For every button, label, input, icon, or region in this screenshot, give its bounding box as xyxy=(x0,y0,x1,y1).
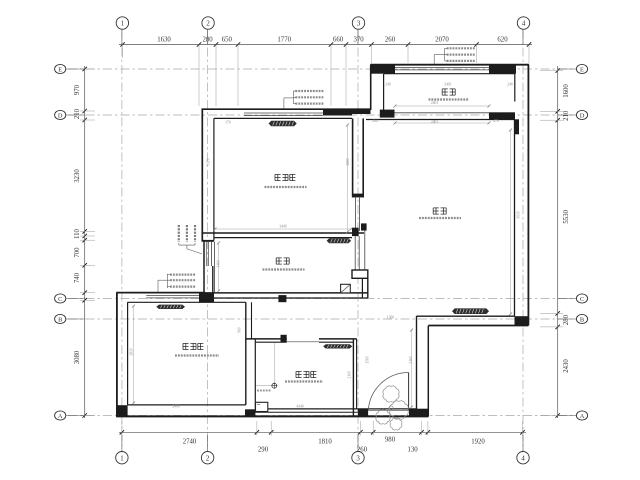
svg-text:476: 476 xyxy=(493,119,499,123)
svg-text:3170: 3170 xyxy=(207,158,211,165)
svg-text:1: 1 xyxy=(121,20,125,28)
svg-text:1920: 1920 xyxy=(471,439,485,446)
svg-text:260: 260 xyxy=(385,37,396,44)
svg-text:650: 650 xyxy=(222,37,233,44)
svg-text:3440: 3440 xyxy=(279,225,286,229)
svg-text:2160: 2160 xyxy=(409,356,413,363)
svg-text:4930: 4930 xyxy=(517,211,521,218)
svg-text:210: 210 xyxy=(74,108,81,119)
svg-text:970: 970 xyxy=(74,84,81,95)
svg-text:1810: 1810 xyxy=(318,439,332,446)
svg-text:210: 210 xyxy=(563,110,570,121)
svg-text:960: 960 xyxy=(238,327,242,333)
svg-text:D: D xyxy=(580,112,585,119)
svg-text:2740: 2740 xyxy=(183,439,197,446)
svg-text:2401: 2401 xyxy=(444,83,451,87)
svg-text:1: 1 xyxy=(120,454,124,462)
svg-text:170: 170 xyxy=(225,121,231,125)
svg-text:2: 2 xyxy=(206,20,210,28)
svg-text:110: 110 xyxy=(74,228,81,239)
svg-text:2880: 2880 xyxy=(346,158,350,165)
svg-text:2070: 2070 xyxy=(435,37,449,44)
svg-text:280: 280 xyxy=(563,314,570,325)
svg-text:D: D xyxy=(58,112,63,119)
svg-text:A: A xyxy=(580,413,585,420)
svg-text:2: 2 xyxy=(206,454,210,462)
svg-text:1360: 1360 xyxy=(387,316,394,320)
svg-text:2430: 2430 xyxy=(563,359,570,373)
svg-text:370: 370 xyxy=(353,37,364,44)
svg-text:4: 4 xyxy=(521,454,525,462)
svg-text:3: 3 xyxy=(357,20,361,28)
svg-text:C: C xyxy=(58,296,62,303)
svg-text:620: 620 xyxy=(497,37,508,44)
svg-text:1630: 1630 xyxy=(157,37,171,44)
svg-text:A: A xyxy=(58,413,63,420)
svg-text:1560: 1560 xyxy=(366,356,370,363)
svg-text:E: E xyxy=(580,66,584,73)
svg-text:2830: 2830 xyxy=(130,348,134,355)
svg-text:980: 980 xyxy=(385,437,396,444)
svg-text:B: B xyxy=(58,316,62,323)
svg-text:3080: 3080 xyxy=(74,350,81,364)
svg-text:740: 740 xyxy=(74,272,81,283)
svg-text:C: C xyxy=(580,296,584,303)
svg-text:2480: 2480 xyxy=(172,405,179,409)
svg-text:130: 130 xyxy=(407,447,418,454)
svg-text:4340: 4340 xyxy=(296,405,303,409)
svg-text:E: E xyxy=(58,66,62,73)
svg-text:264: 264 xyxy=(372,119,378,123)
svg-text:5530: 5530 xyxy=(563,209,570,223)
svg-text:660: 660 xyxy=(333,37,344,44)
svg-text:3230: 3230 xyxy=(74,169,81,183)
svg-text:3: 3 xyxy=(356,454,360,462)
svg-text:240: 240 xyxy=(385,83,391,87)
svg-text:1770: 1770 xyxy=(277,37,291,44)
svg-text:1600: 1600 xyxy=(563,84,570,98)
svg-text:240: 240 xyxy=(507,83,513,87)
svg-text:4: 4 xyxy=(522,20,526,28)
svg-text:700: 700 xyxy=(74,247,81,258)
svg-text:290: 290 xyxy=(258,447,269,454)
svg-text:2100: 2100 xyxy=(348,371,352,378)
svg-text:2401: 2401 xyxy=(431,101,438,105)
svg-text:B: B xyxy=(580,316,584,323)
